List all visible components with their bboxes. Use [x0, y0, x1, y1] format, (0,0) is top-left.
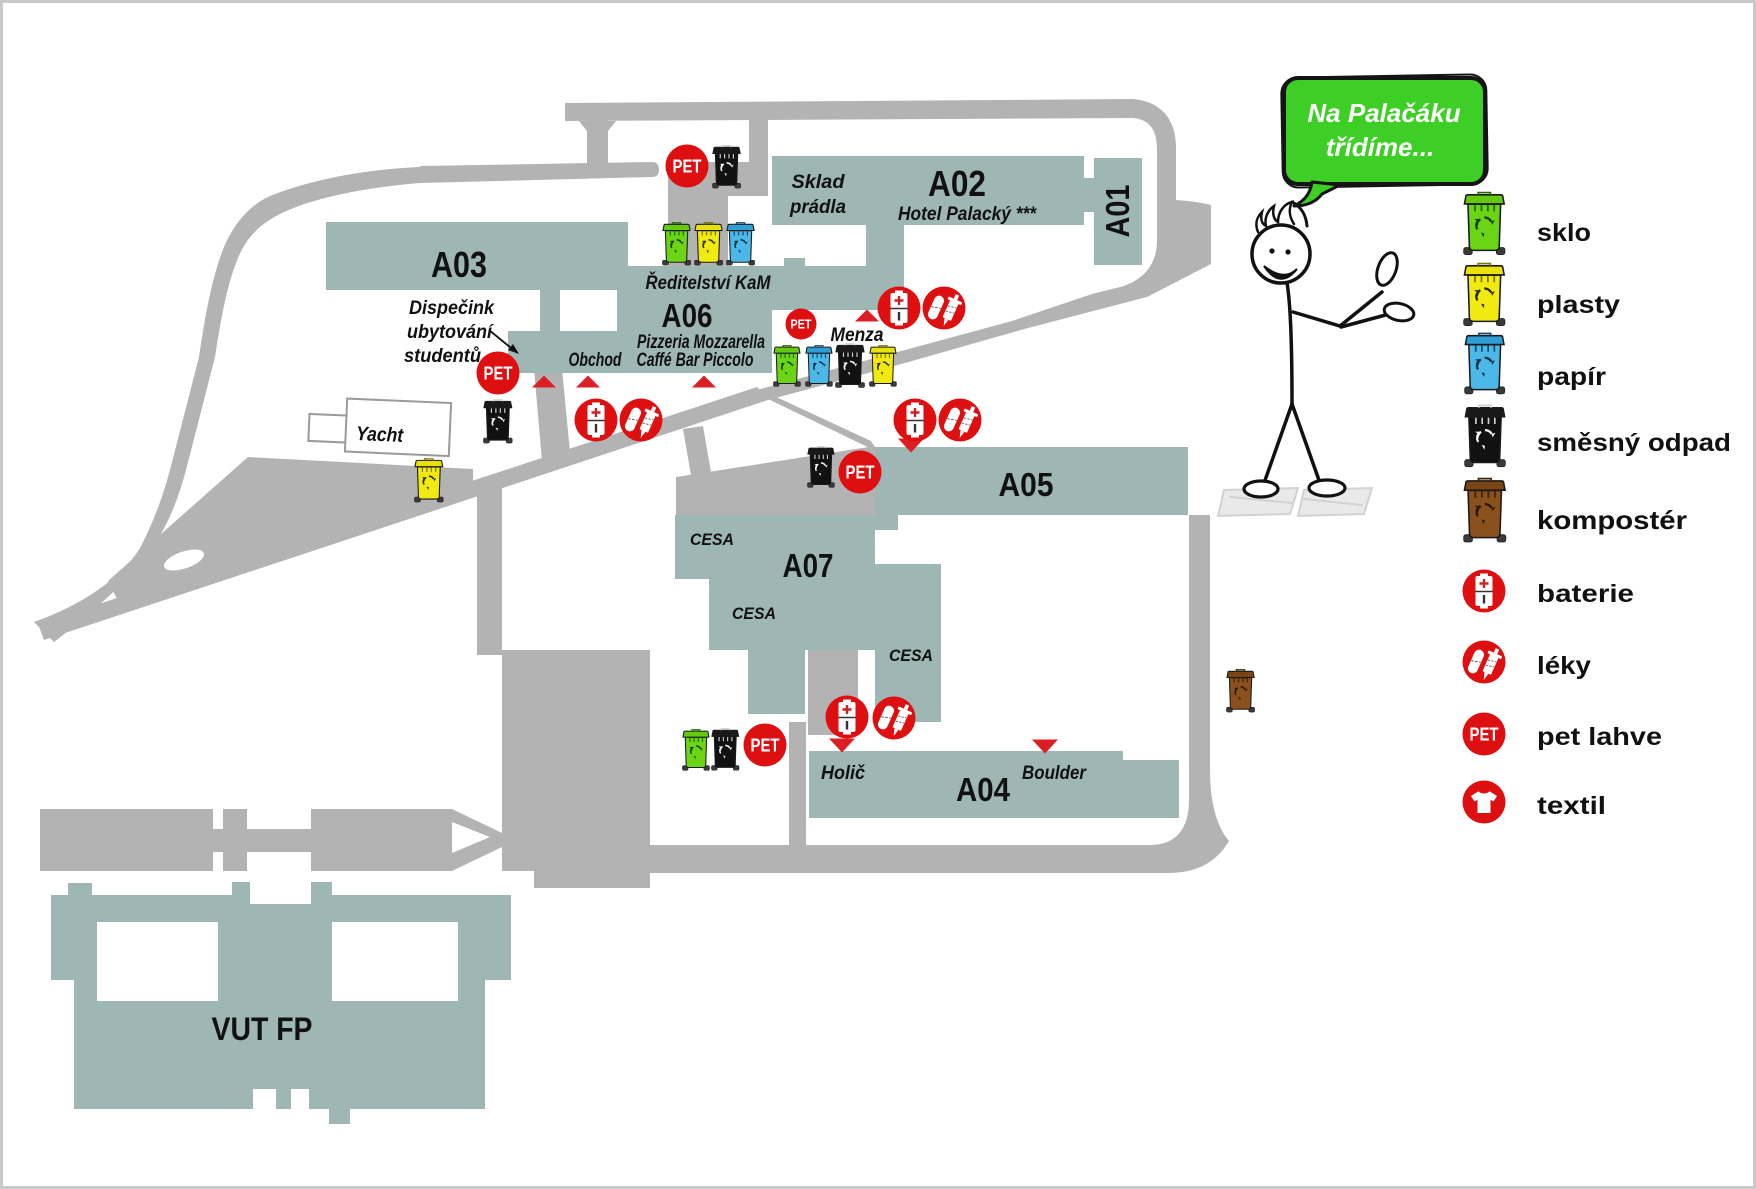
svg-text:VUT FP: VUT FP [212, 1011, 313, 1047]
svg-text:třídíme...: třídíme... [1326, 132, 1434, 162]
svg-text:Caffé Bar Piccolo: Caffé Bar Piccolo [637, 350, 754, 371]
svg-text:Obchod: Obchod [569, 350, 622, 371]
svg-text:CESA: CESA [889, 646, 933, 665]
svg-text:Boulder: Boulder [1022, 763, 1087, 784]
svg-text:A01: A01 [1099, 185, 1136, 238]
svg-text:Dispečink: Dispečink [409, 298, 495, 319]
svg-text:Sklad: Sklad [792, 172, 845, 193]
svg-text:ubytování: ubytování [407, 322, 495, 343]
svg-text:Yacht: Yacht [356, 423, 405, 447]
svg-text:sklo: sklo [1537, 219, 1591, 247]
svg-text:A02: A02 [928, 163, 986, 204]
svg-text:kompostér: kompostér [1537, 505, 1687, 535]
svg-text:Ředitelství KaM: Ředitelství KaM [646, 272, 772, 294]
svg-text:A07: A07 [783, 547, 834, 584]
svg-text:Hotel Palacký ***: Hotel Palacký *** [898, 204, 1037, 225]
svg-text:A06: A06 [662, 297, 713, 334]
svg-text:léky: léky [1537, 652, 1591, 680]
svg-text:Na Palačáku: Na Palačáku [1307, 98, 1460, 128]
svg-text:studentů: studentů [404, 346, 481, 367]
svg-text:textil: textil [1537, 792, 1606, 820]
svg-text:Holič: Holič [821, 763, 865, 784]
svg-text:A03: A03 [431, 244, 487, 285]
svg-text:A05: A05 [999, 466, 1054, 503]
svg-text:CESA: CESA [690, 530, 734, 549]
svg-text:baterie: baterie [1537, 580, 1634, 608]
svg-text:Menza: Menza [831, 325, 884, 346]
svg-text:pet lahve: pet lahve [1537, 723, 1662, 751]
svg-text:prádla: prádla [789, 197, 846, 218]
svg-text:A04: A04 [956, 771, 1011, 808]
svg-text:papír: papír [1537, 363, 1606, 391]
svg-text:CESA: CESA [732, 604, 776, 623]
svg-text:směsný odpad: směsný odpad [1537, 429, 1731, 457]
svg-text:plasty: plasty [1537, 291, 1620, 319]
